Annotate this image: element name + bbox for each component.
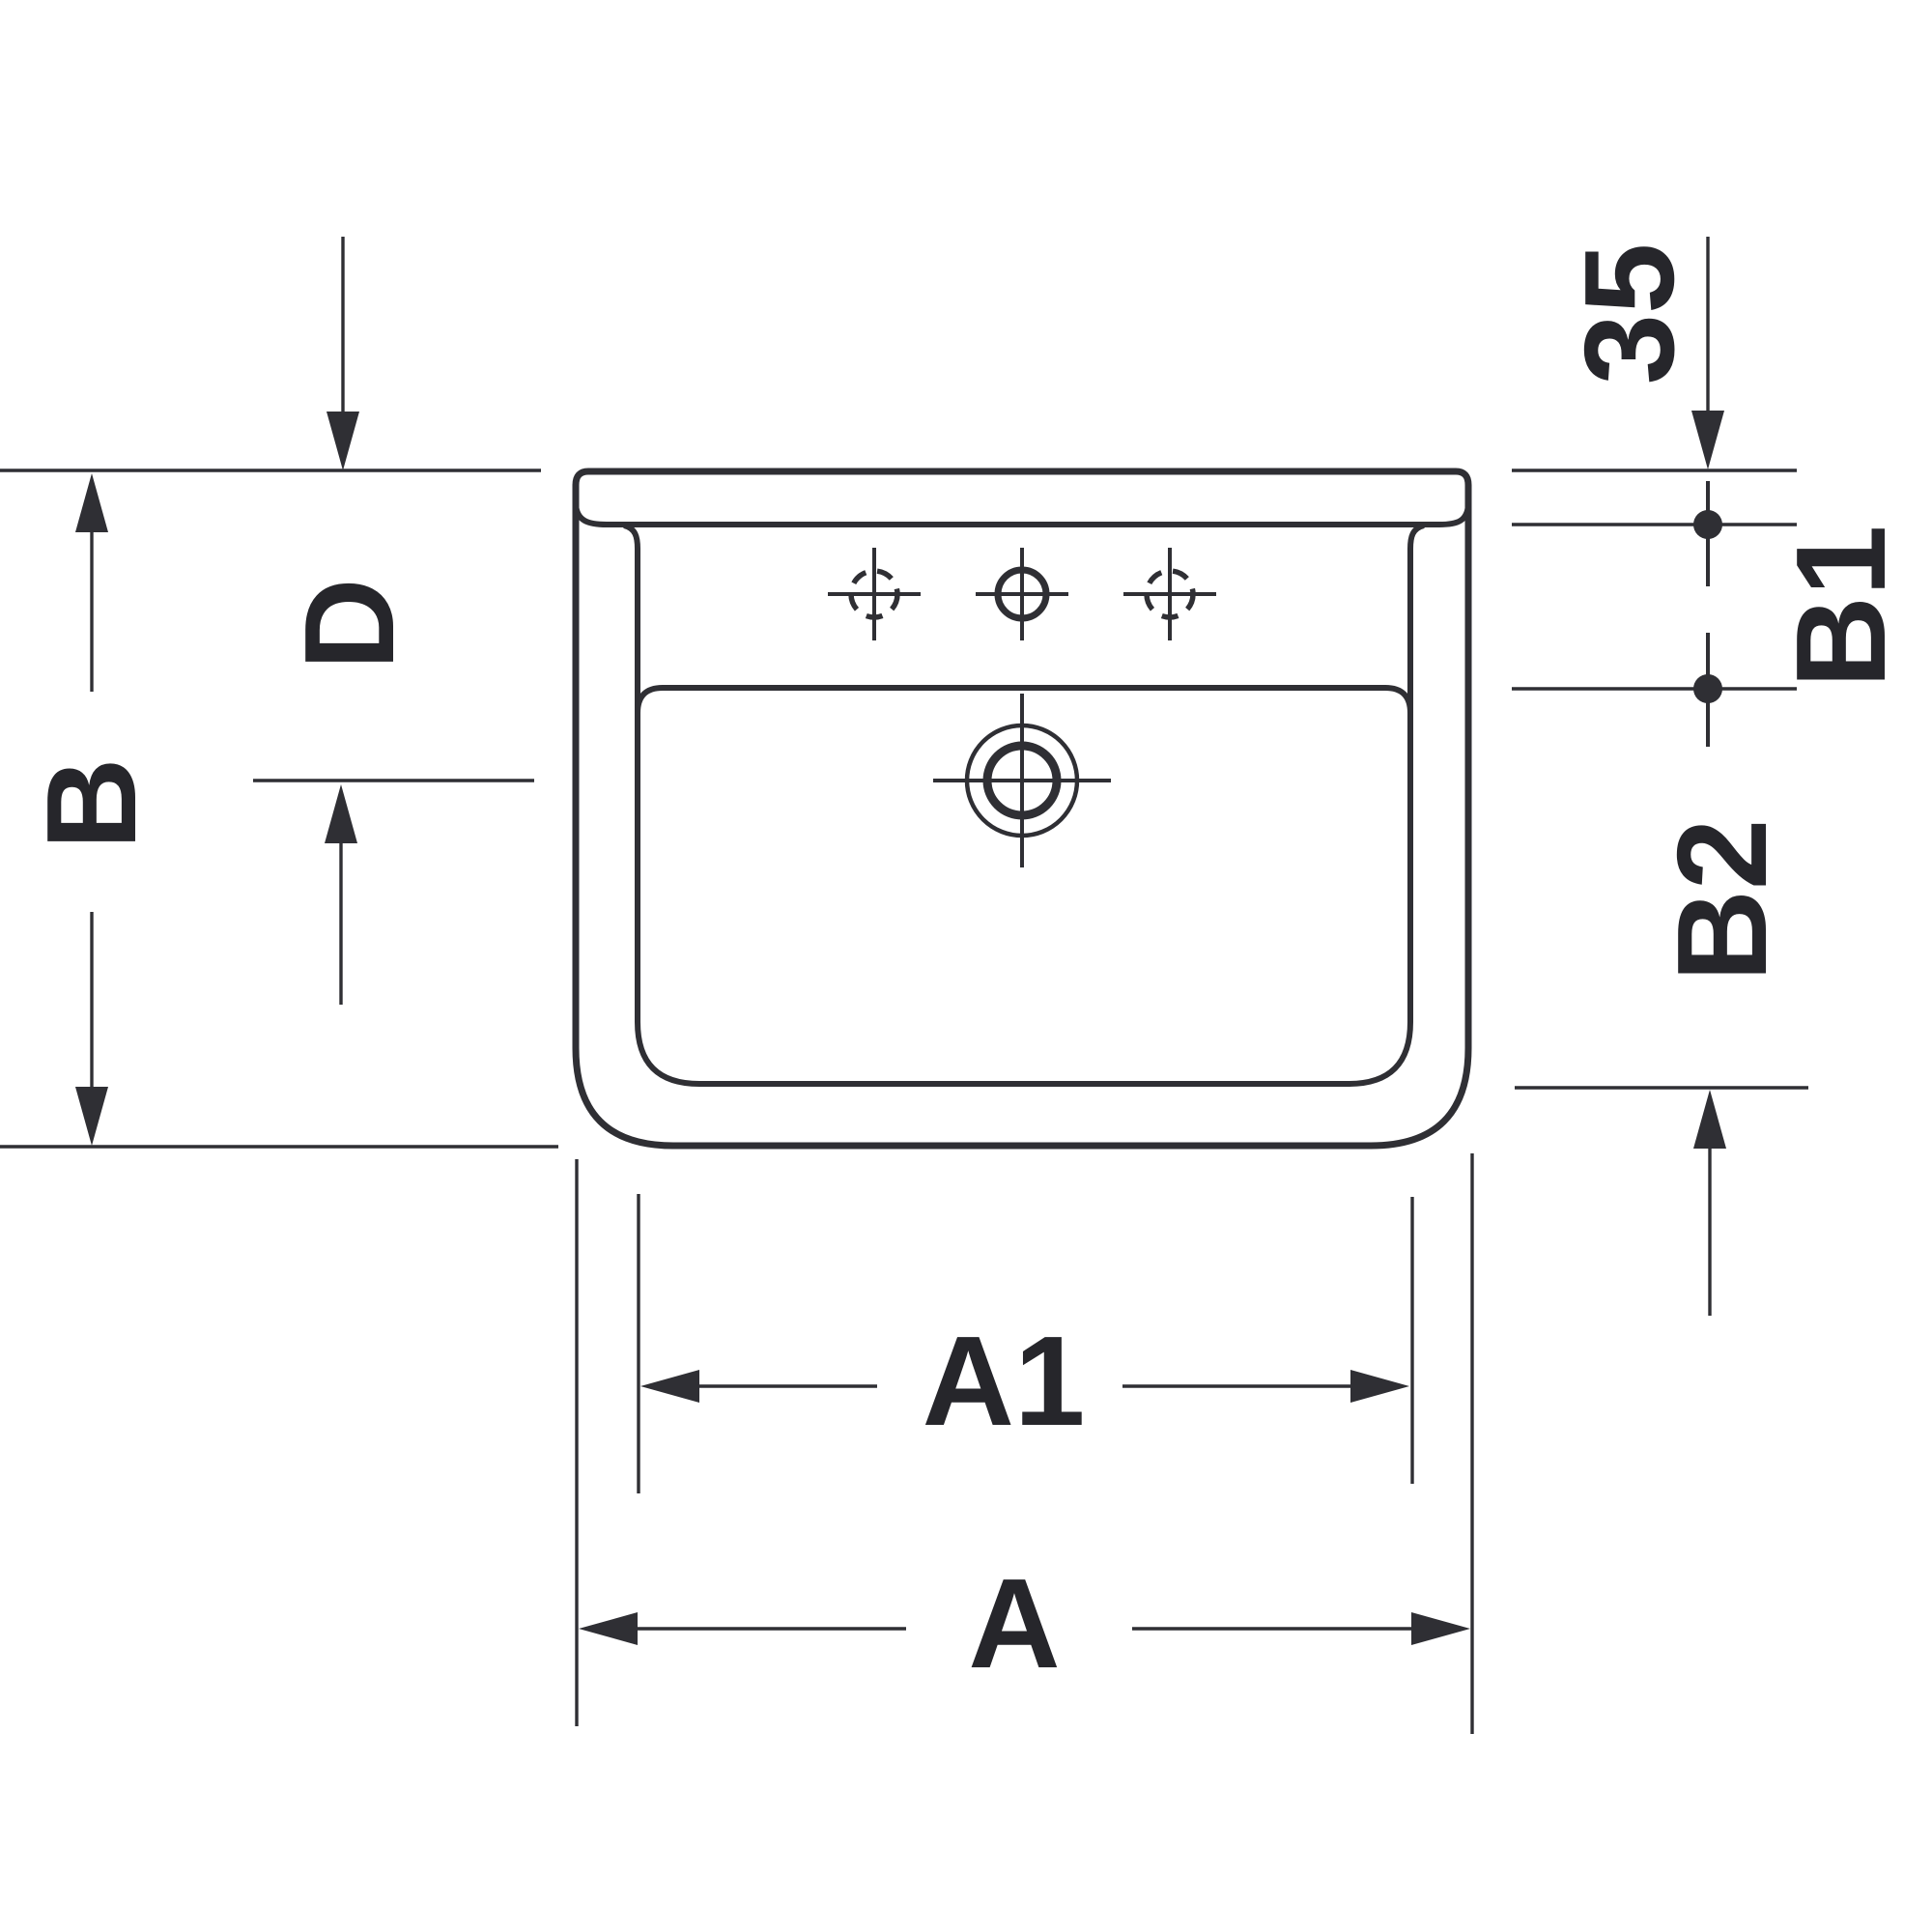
drawing-canvas: B D 35 B1	[0, 0, 1932, 1932]
dim-b1-label: B1	[1770, 526, 1912, 689]
arrow-up-icon	[75, 473, 108, 532]
dimension-d: D	[253, 237, 534, 1005]
dim-b-label: B	[20, 757, 162, 849]
washbasin	[576, 471, 1468, 1146]
reference-dot-icon	[1693, 674, 1722, 703]
arrow-up-icon	[1693, 1090, 1726, 1149]
washbasin-rim-ledge-line	[576, 502, 1468, 525]
dimension-35: 35	[1512, 237, 1797, 470]
arrow-right-icon	[1411, 1612, 1470, 1645]
dim-d-label: D	[278, 578, 420, 669]
arrow-down-icon	[75, 1087, 108, 1146]
dim-35-label: 35	[1558, 243, 1700, 385]
arrow-down-icon	[327, 412, 359, 470]
arrow-up-icon	[325, 784, 357, 843]
dim-a1-label: A1	[923, 1310, 1086, 1452]
dim-b2-label: B2	[1651, 819, 1793, 982]
dim-a-label: A	[968, 1552, 1060, 1694]
washbasin-technical-drawing: B D 35 B1	[0, 0, 1932, 1932]
arrow-left-icon	[579, 1612, 638, 1645]
drain-hole-icon	[933, 694, 1111, 867]
arrow-down-icon	[1691, 411, 1724, 469]
dimension-b: B	[0, 470, 558, 1147]
faucet-hole-center-icon	[976, 548, 1068, 640]
faucet-hole-right-icon	[1123, 548, 1216, 640]
dimension-a1: A1	[639, 1194, 1412, 1493]
arrow-left-icon	[640, 1370, 699, 1403]
dimension-b1: B1	[1512, 481, 1912, 747]
reference-dot-icon	[1693, 510, 1722, 539]
faucet-hole-left-icon	[828, 548, 921, 640]
dimension-b2: B2	[1515, 819, 1808, 1316]
arrow-right-icon	[1350, 1370, 1409, 1403]
